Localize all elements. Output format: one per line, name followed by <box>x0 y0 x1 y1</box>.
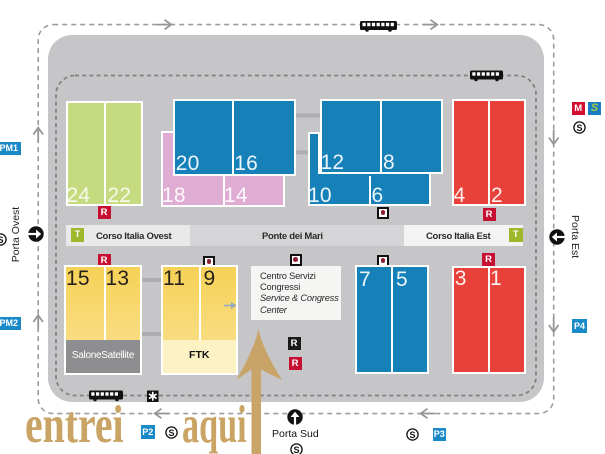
svg-text:S: S <box>168 428 174 438</box>
svg-text:S: S <box>576 123 582 133</box>
svg-text:S: S <box>293 445 299 454</box>
svg-text:S: S <box>409 429 415 439</box>
svg-text:S: S <box>0 234 4 244</box>
